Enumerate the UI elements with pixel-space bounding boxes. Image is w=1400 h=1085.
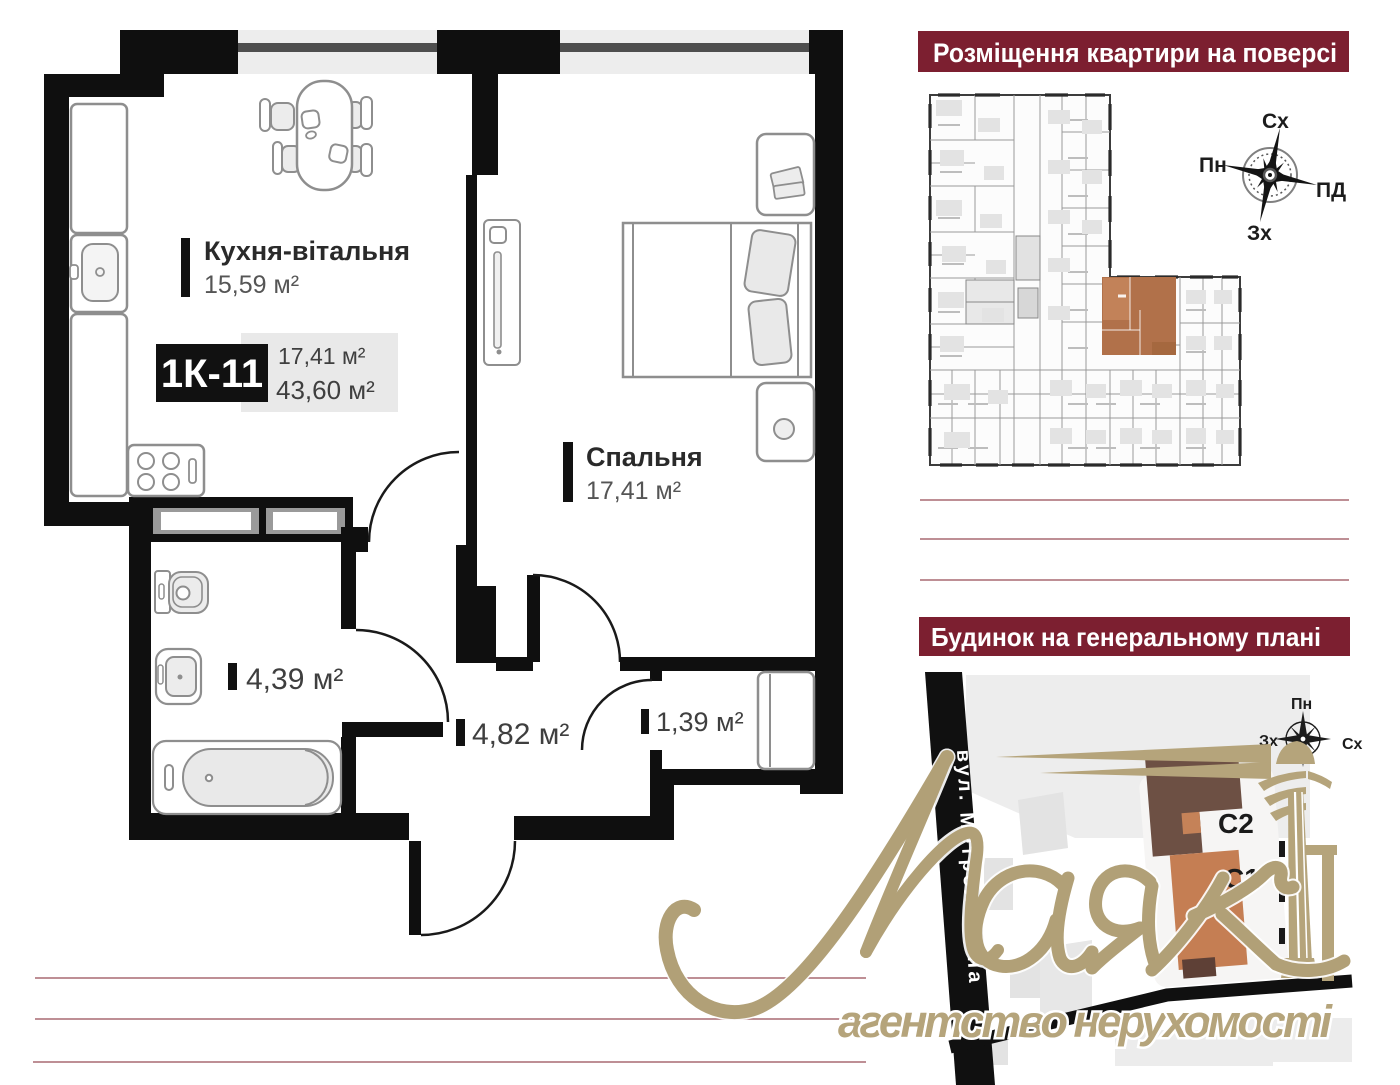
svg-text:Зх: Зх [1247,222,1272,245]
svg-text:17,41 м²: 17,41 м² [586,477,681,505]
svg-text:17,41 м²: 17,41 м² [278,343,366,369]
svg-text:43,60 м²: 43,60 м² [276,375,375,405]
svg-text:Пн: Пн [1199,154,1227,177]
svg-text:4,39 м²: 4,39 м² [246,663,343,696]
svg-text:4,82 м²: 4,82 м² [472,718,569,751]
svg-text:1,39 м²: 1,39 м² [656,707,744,737]
svg-text:Пн: Пн [1291,696,1312,713]
svg-text:Спальня: Спальня [586,442,703,472]
svg-text:агентство нерухомості: агентство нерухомості [838,996,1333,1047]
svg-text:Розміщення квартири на поверсі: Розміщення квартири на поверсі [933,38,1337,68]
svg-text:15,59 м²: 15,59 м² [204,271,299,299]
svg-text:Будинок на генеральному плані: Будинок на генеральному плані [931,622,1321,652]
svg-text:Сх: Сх [1262,110,1289,133]
svg-text:С2: С2 [1218,808,1254,839]
svg-text:Сх: Сх [1342,736,1363,753]
svg-text:1К-11: 1К-11 [161,352,263,396]
svg-text:ПД: ПД [1316,179,1346,202]
svg-text:Кухня-вітальня: Кухня-вітальня [204,236,410,266]
